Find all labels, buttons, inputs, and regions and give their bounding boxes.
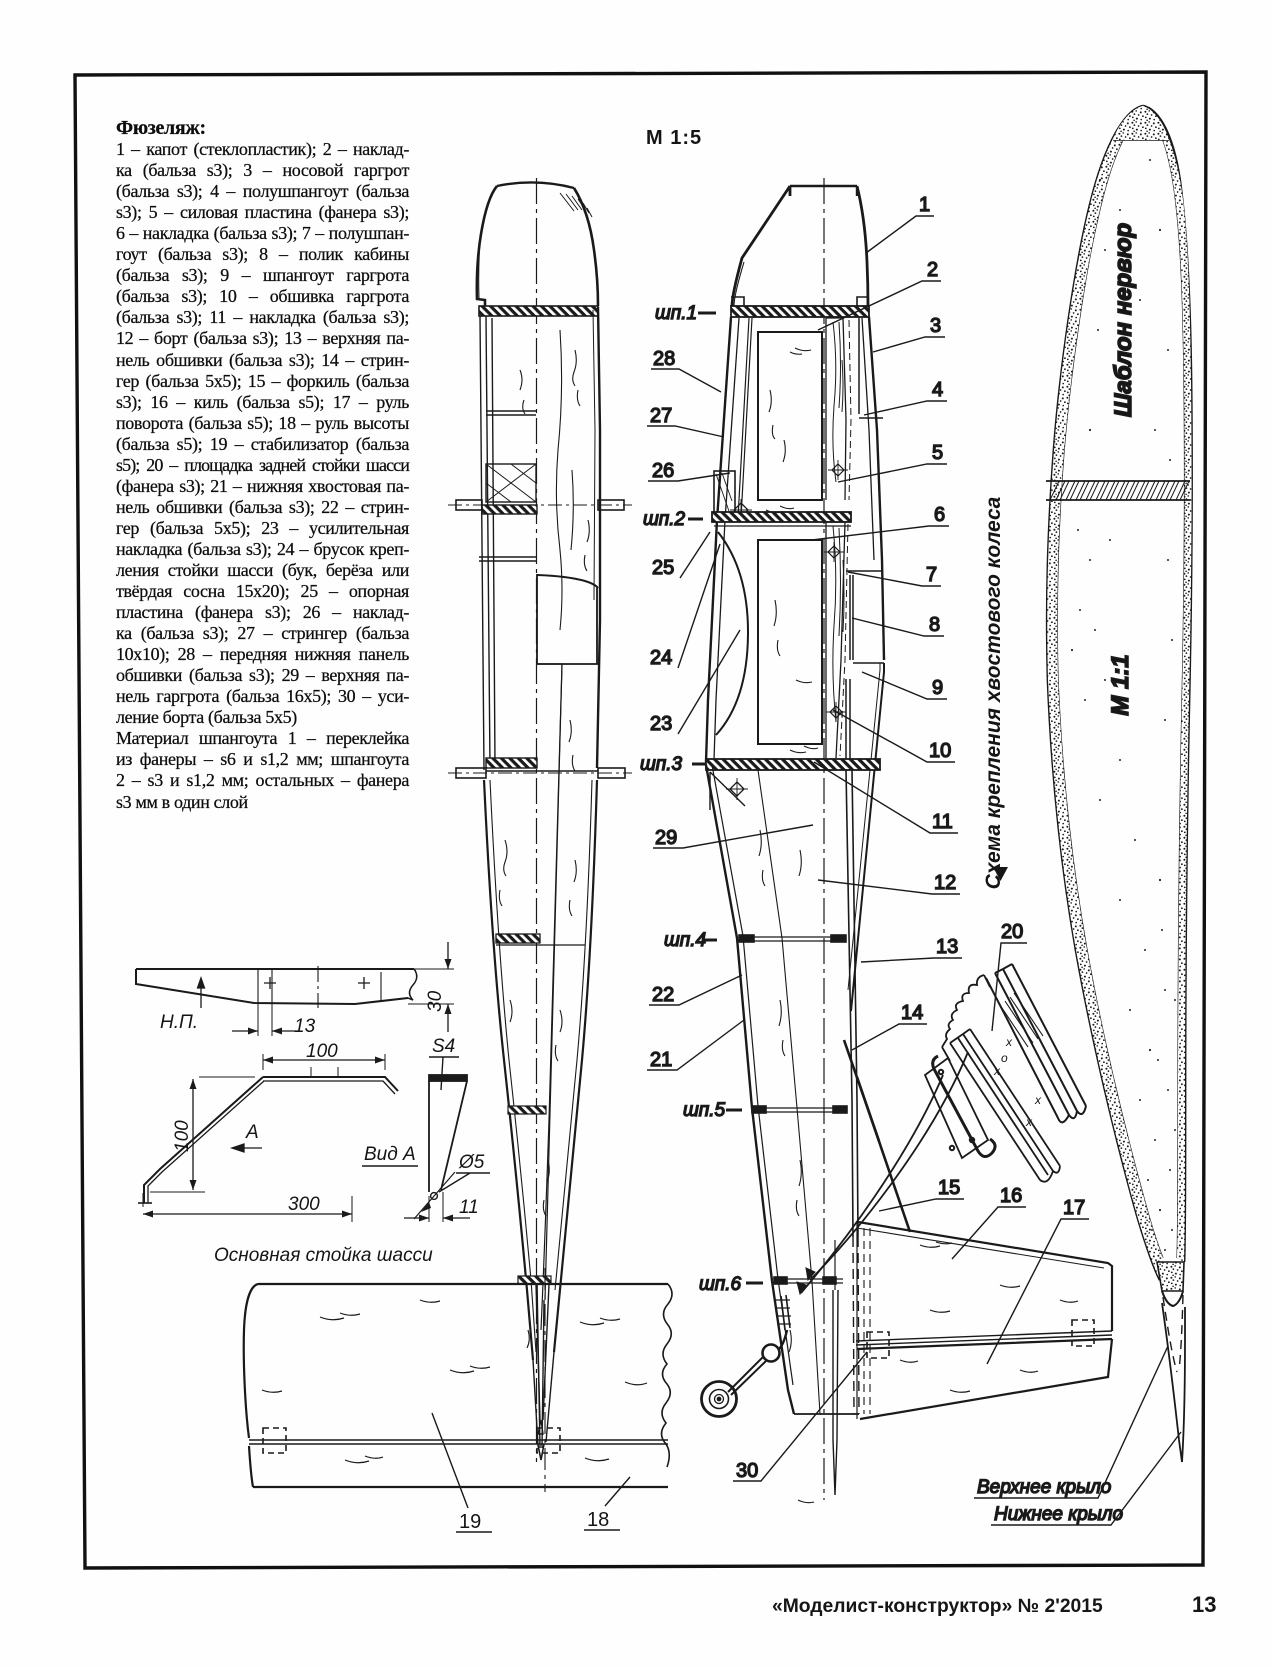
svg-text:26: 26	[652, 460, 674, 482]
svg-text:шп.4: шп.4	[664, 930, 706, 951]
svg-text:13: 13	[1192, 1592, 1216, 1617]
svg-text:28: 28	[653, 348, 675, 370]
svg-text:18: 18	[587, 1509, 609, 1531]
svg-text:Н.П.: Н.П.	[160, 1012, 198, 1033]
svg-text:Вид А: Вид А	[364, 1144, 416, 1165]
svg-text:14: 14	[901, 1002, 923, 1024]
svg-text:100: 100	[306, 1041, 338, 1062]
svg-text:15: 15	[938, 1177, 960, 1199]
svg-text:5: 5	[932, 442, 943, 464]
svg-text:шп.6: шп.6	[699, 1274, 742, 1295]
svg-text:S4: S4	[432, 1036, 455, 1057]
svg-text:Основная стойка шасси: Основная стойка шасси	[214, 1245, 433, 1266]
svg-text:11: 11	[459, 1197, 479, 1218]
svg-text:13: 13	[294, 1016, 316, 1037]
svg-text:М 1:1: М 1:1	[1107, 654, 1134, 715]
svg-text:Шаблон нервюр: Шаблон нервюр	[1110, 223, 1137, 417]
svg-text:13: 13	[936, 936, 958, 958]
svg-text:30: 30	[425, 990, 446, 1012]
svg-text:16: 16	[1000, 1185, 1022, 1207]
svg-text:6: 6	[934, 504, 945, 526]
svg-text:3: 3	[930, 315, 941, 337]
svg-text:21: 21	[650, 1049, 672, 1071]
svg-text:7: 7	[926, 564, 937, 586]
svg-text:o: o	[1001, 1051, 1008, 1065]
svg-text:шп.1: шп.1	[655, 303, 697, 324]
svg-text:29: 29	[655, 827, 677, 849]
svg-text:x: x	[1025, 1115, 1033, 1129]
svg-text:19: 19	[459, 1511, 481, 1533]
svg-text:М 1:5: М 1:5	[646, 127, 702, 149]
svg-text:23: 23	[650, 713, 672, 735]
svg-text:20: 20	[1001, 921, 1023, 943]
svg-text:Схема крепления хвостового кол: Схема крепления хвостового колеса	[982, 496, 1005, 889]
svg-text:Верхнее крыло: Верхнее крыло	[977, 1477, 1111, 1498]
svg-text:x: x	[993, 1064, 1001, 1078]
svg-text:шп.3: шп.3	[640, 754, 683, 775]
svg-text:24: 24	[650, 647, 672, 669]
svg-text:300: 300	[288, 1194, 320, 1215]
svg-text:x: x	[1005, 1035, 1013, 1049]
svg-text:10: 10	[929, 740, 951, 762]
svg-text:1: 1	[919, 194, 930, 216]
svg-text:«Моделист-конструктор» № 2'201: «Моделист-конструктор» № 2'2015	[772, 1596, 1103, 1617]
svg-text:2: 2	[927, 259, 938, 281]
svg-text:12: 12	[934, 872, 956, 894]
svg-text:Ø5: Ø5	[458, 1152, 485, 1173]
svg-text:шп.2: шп.2	[643, 509, 686, 530]
svg-text:8: 8	[929, 614, 940, 636]
svg-text:9: 9	[932, 677, 943, 699]
svg-text:Нижнее крыло: Нижнее крыло	[994, 1504, 1123, 1525]
svg-text:22: 22	[652, 984, 674, 1006]
svg-text:27: 27	[650, 405, 672, 427]
svg-text:шп.5: шп.5	[683, 1100, 726, 1121]
svg-text:25: 25	[652, 557, 674, 579]
svg-text:30: 30	[736, 1460, 758, 1482]
svg-text:x: x	[1034, 1093, 1042, 1107]
svg-text:100: 100	[172, 1120, 193, 1152]
svg-text:A: A	[245, 1122, 259, 1143]
svg-text:11: 11	[932, 811, 953, 833]
svg-text:4: 4	[932, 379, 943, 401]
svg-text:17: 17	[1063, 1197, 1085, 1219]
